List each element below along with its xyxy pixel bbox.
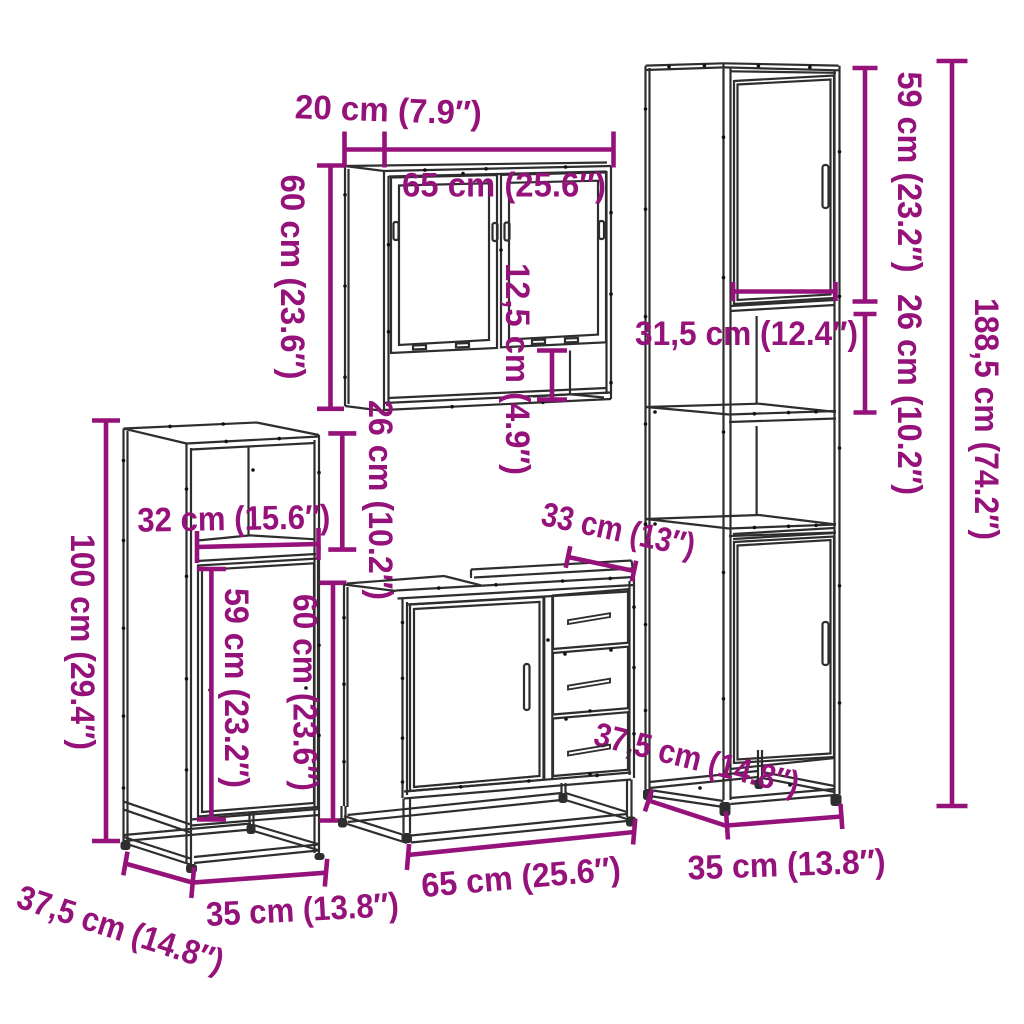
svg-text:60 cm (23.6″): 60 cm (23.6″) <box>286 594 324 791</box>
svg-text:59 cm (23.2″): 59 cm (23.2″) <box>890 72 928 273</box>
svg-text:59 cm (23.2″): 59 cm (23.2″) <box>217 588 255 788</box>
svg-text:31,5 cm (12.4″): 31,5 cm (12.4″) <box>635 315 858 353</box>
svg-text:12,5 cm (4.9″): 12,5 cm (4.9″) <box>498 263 536 475</box>
svg-text:26 cm (10.2″): 26 cm (10.2″) <box>361 400 399 600</box>
svg-text:26 cm (10.2″): 26 cm (10.2″) <box>890 294 928 495</box>
svg-text:32 cm (15.6″): 32 cm (15.6″) <box>137 498 331 539</box>
svg-text:188,5 cm (74.2″): 188,5 cm (74.2″) <box>967 298 1005 540</box>
svg-text:60 cm (23.6″): 60 cm (23.6″) <box>273 175 311 380</box>
svg-text:65 cm (25.6″): 65 cm (25.6″) <box>402 167 606 205</box>
svg-text:20 cm (7.9″): 20 cm (7.9″) <box>294 88 482 133</box>
svg-text:100 cm (29.4″): 100 cm (29.4″) <box>63 534 101 750</box>
svg-text:35 cm (13.8″): 35 cm (13.8″) <box>687 843 886 888</box>
